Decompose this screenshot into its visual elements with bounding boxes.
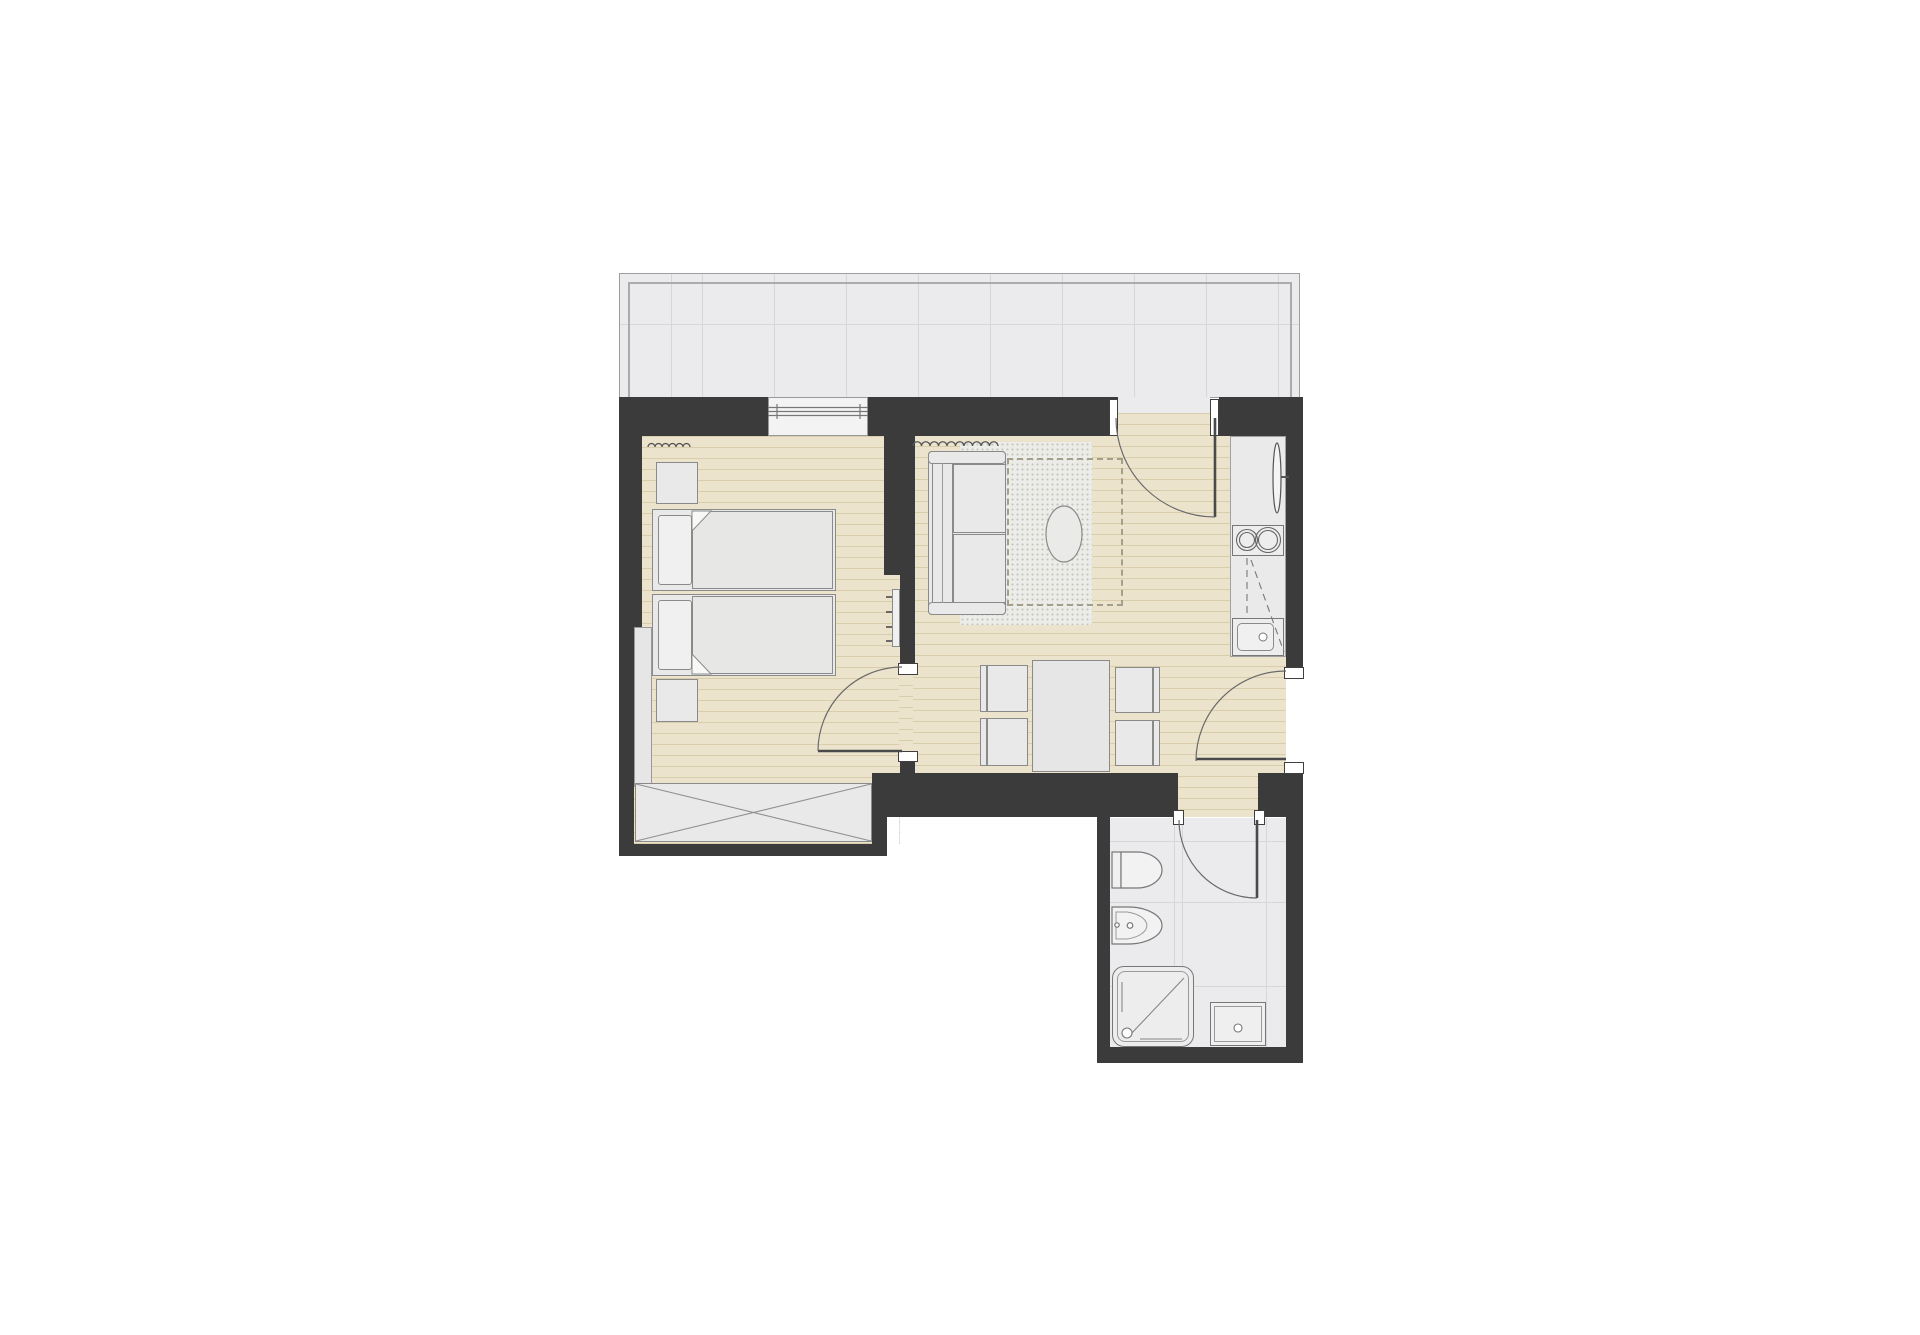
sofa-bed-dashed-outline — [1007, 458, 1123, 606]
bed-2-pillow — [658, 600, 692, 670]
balcony-floor — [619, 273, 1300, 398]
washbasin-inner — [1214, 1006, 1262, 1042]
bedroom-door-jamb-bottom — [898, 751, 918, 762]
kitchen-sink-basin — [1237, 623, 1274, 651]
north-wall-mid — [868, 397, 1118, 436]
chair-2-seat — [987, 718, 1028, 766]
chair-1-seat — [987, 665, 1028, 712]
partition-wall-upper — [884, 436, 915, 575]
west-wall-lower — [619, 627, 634, 856]
chair-3-back — [1153, 667, 1160, 713]
balcony-door-jamb-right — [1210, 399, 1219, 436]
wall-niche — [634, 627, 652, 787]
bed-1-pillow — [658, 515, 692, 585]
bed-2-duvet — [692, 596, 833, 674]
balcony-door-threshold-tile — [1118, 397, 1210, 413]
sofa-cushion-1 — [953, 464, 1006, 533]
sofa-armrest-bottom — [928, 602, 1006, 615]
bedroom-south-wall — [619, 844, 887, 856]
floor-plan-canvas — [0, 0, 1920, 1335]
east-wall-upper — [1286, 433, 1303, 668]
bathroom-west-wall — [1097, 817, 1110, 1063]
dining-south-wall — [872, 773, 1178, 817]
chair-4-back — [1153, 720, 1160, 766]
chair-4-seat — [1115, 720, 1153, 766]
chair-1-back — [980, 665, 987, 712]
partition-wall-lower — [900, 575, 915, 663]
entrance-door-jamb-bottom — [1284, 762, 1304, 774]
bathroom-south-wall — [1097, 1047, 1303, 1063]
bedroom-doorway-floor — [899, 663, 913, 762]
bathroom-door-jamb-right — [1254, 810, 1265, 825]
nightstand-2 — [656, 679, 698, 722]
balcony-door-jamb-left — [1109, 399, 1118, 436]
west-wall-upper — [619, 397, 642, 627]
shower-tray-inner — [1117, 971, 1189, 1042]
step-wall — [872, 817, 887, 844]
dining-table — [1032, 660, 1110, 772]
nightstand-1 — [656, 462, 698, 504]
bedroom-door-jamb-top — [898, 663, 918, 675]
kitchen-hob — [1232, 525, 1284, 556]
partition-below-door — [900, 762, 915, 773]
bed-1-duvet — [692, 511, 833, 589]
wardrobe — [635, 783, 872, 842]
bedroom-window — [768, 397, 868, 436]
bathroom-door-jamb-left — [1173, 810, 1184, 825]
entrance-door-jamb-top — [1284, 667, 1304, 679]
sofa-cushion-2 — [953, 534, 1006, 603]
exterior-notch — [887, 817, 899, 844]
bedroom-radiator-panel — [892, 589, 900, 647]
sofa-backrest-line — [942, 463, 943, 603]
chair-3-seat — [1115, 667, 1153, 713]
east-wall-lower — [1286, 773, 1303, 1063]
chair-2-back — [980, 718, 987, 766]
north-wall-right — [1219, 397, 1303, 436]
